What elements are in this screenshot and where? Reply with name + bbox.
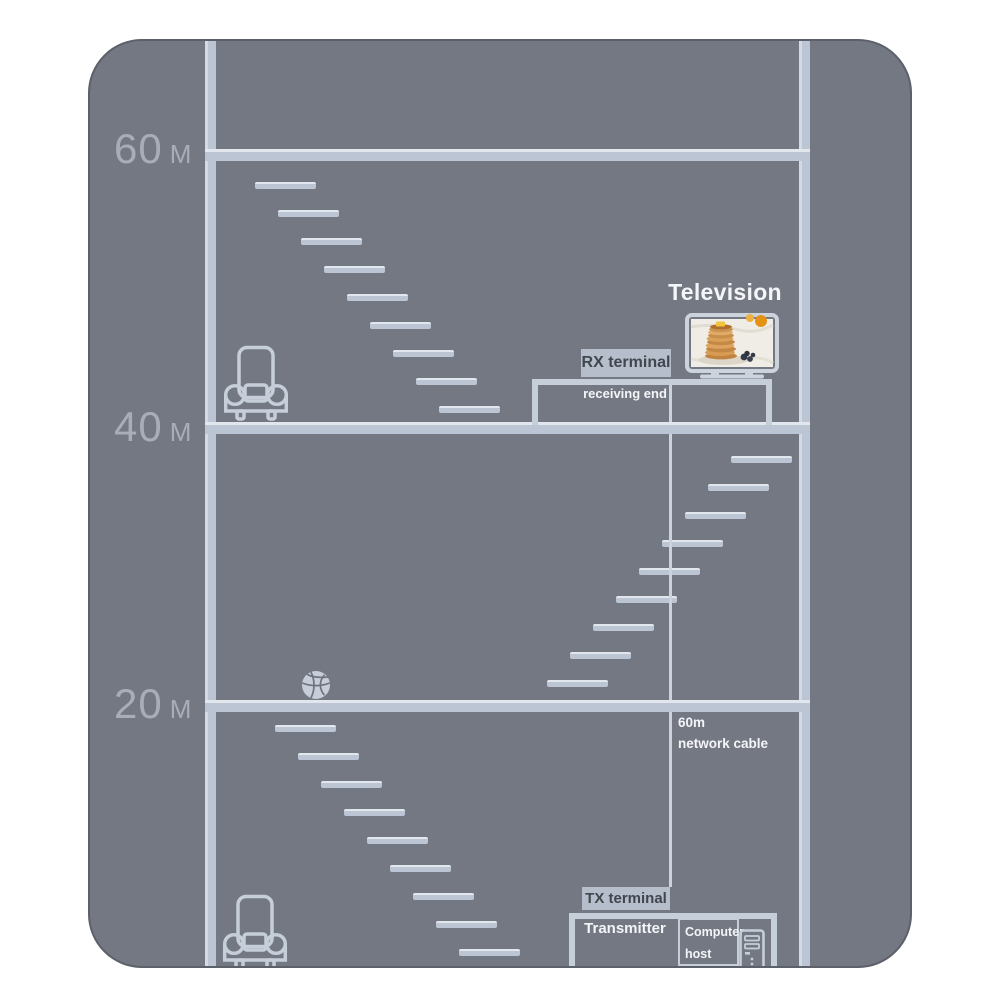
stair-step	[570, 652, 631, 659]
floor-label-60m: 60 M	[114, 127, 192, 171]
stair-step	[390, 865, 451, 872]
stair-step	[459, 949, 520, 956]
floor-line-20m	[205, 700, 810, 712]
transmitter-label: Transmitter	[570, 920, 680, 937]
stair-step	[255, 182, 316, 189]
floor-line-60m	[205, 149, 810, 161]
right-wall	[799, 41, 810, 966]
illustration-canvas: 60 M 40 M 20 M 60m network cable	[0, 0, 1000, 1000]
stair-step	[298, 753, 359, 760]
floor-label-20m: 20 M	[114, 682, 192, 726]
stair-step	[616, 596, 677, 603]
television-label: Television	[650, 279, 800, 306]
stair-step	[370, 322, 431, 329]
computer-tower-icon	[739, 929, 765, 968]
tx-terminal-badge: TX terminal	[582, 887, 670, 910]
stair-step	[685, 512, 746, 519]
network-cable-line	[669, 385, 672, 887]
stair-step	[324, 266, 385, 273]
stair-step	[436, 921, 497, 928]
stair-step	[301, 238, 362, 245]
stair-step	[367, 837, 428, 844]
rx-terminal-badge: RX terminal	[581, 349, 671, 377]
tv-icon	[685, 313, 779, 379]
stair-step	[275, 725, 336, 732]
stair-step	[439, 406, 500, 413]
tv-screen-image	[691, 314, 773, 367]
basketball-icon	[301, 670, 331, 700]
cable-length-label: 60m network cable	[678, 712, 768, 754]
stair-step	[321, 781, 382, 788]
stair-step	[413, 893, 474, 900]
left-wall	[205, 41, 216, 966]
armchair-icon	[220, 894, 290, 968]
armchair-icon	[224, 345, 288, 423]
building-cross-section: 60 M 40 M 20 M 60m network cable	[88, 39, 912, 968]
stair-step	[347, 294, 408, 301]
receiving-end-label: receiving end	[560, 386, 690, 401]
stair-step	[593, 624, 654, 631]
stair-step	[547, 680, 608, 687]
stair-step	[278, 210, 339, 217]
stair-step	[344, 809, 405, 816]
stair-step	[731, 456, 792, 463]
computer-host-box: Computer host	[678, 918, 739, 966]
stair-step	[416, 378, 477, 385]
stair-step	[708, 484, 769, 491]
stair-step	[393, 350, 454, 357]
floor-label-40m: 40 M	[114, 405, 192, 449]
